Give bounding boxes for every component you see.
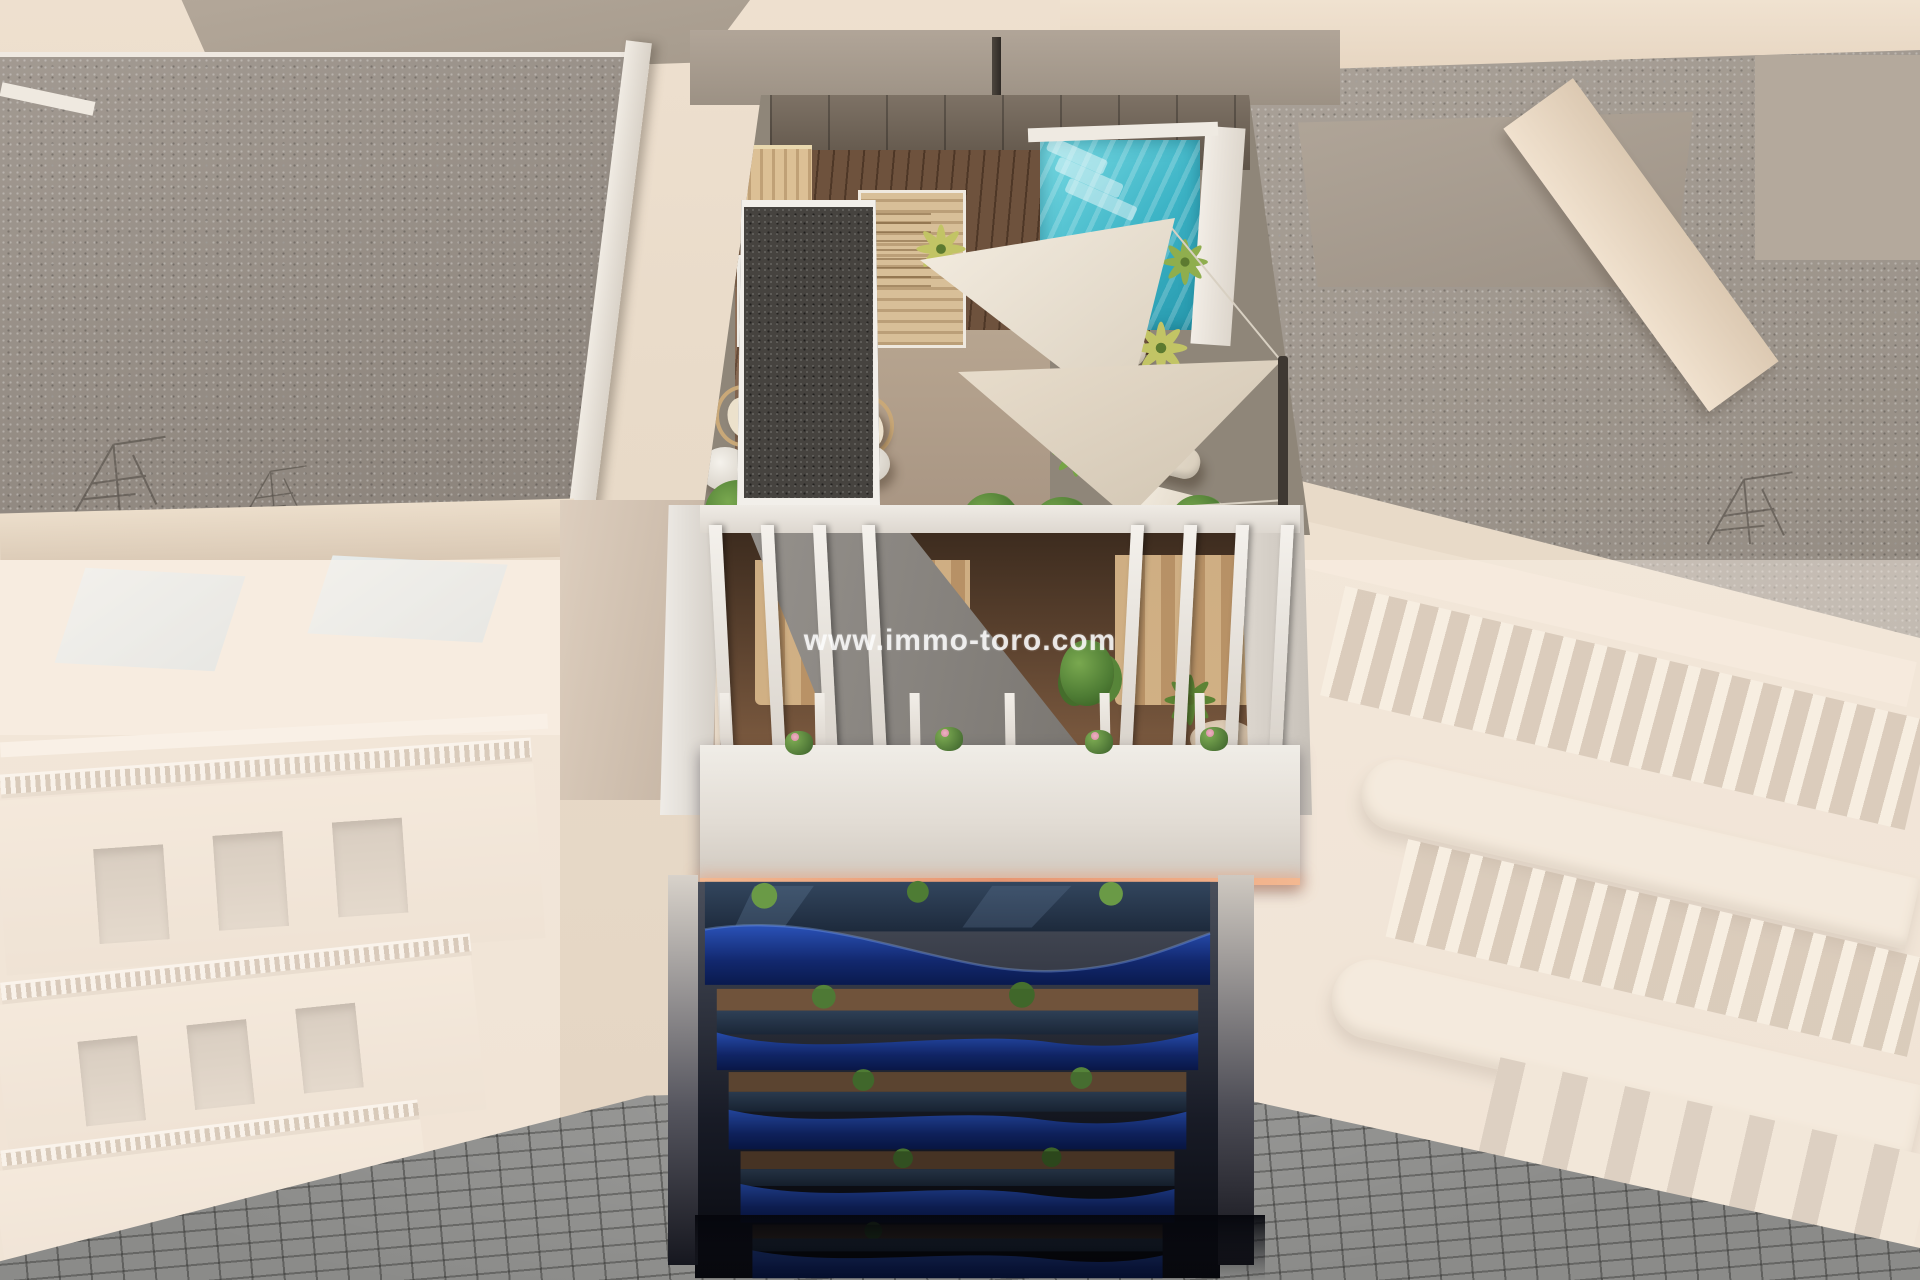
- balcony-plant: [907, 881, 929, 903]
- sail-pole: [1278, 356, 1288, 508]
- depth-shade: [729, 1072, 1187, 1149]
- parapet-post: [815, 693, 826, 745]
- balcony-plant: [1099, 882, 1123, 906]
- skylight: [55, 568, 246, 671]
- neighbor-gravel-roof-left: [0, 52, 648, 514]
- window: [332, 818, 408, 918]
- window: [186, 1019, 255, 1110]
- shade-sail: [958, 360, 1282, 518]
- neighbor-roof-block: [1755, 55, 1920, 260]
- parapet-post: [720, 693, 731, 745]
- flower-pot: [785, 731, 813, 755]
- window: [77, 1036, 146, 1127]
- balcony-plant: [751, 883, 777, 909]
- flower-pot: [1200, 727, 1228, 751]
- pool-steps: [1046, 136, 1109, 175]
- far-wall: [690, 30, 1340, 105]
- parapet-post: [1005, 693, 1016, 745]
- penthouse-lintel: [700, 505, 1300, 533]
- balcony-level-3: [729, 1067, 1187, 1149]
- balcony-flank-wall: [668, 875, 698, 1265]
- balcony-level-4: [741, 1147, 1175, 1222]
- depth-shade: [717, 989, 1198, 1070]
- building-base-shadow: [695, 1215, 1265, 1280]
- skylight: [307, 555, 507, 642]
- antenna-sketch-icon: [55, 427, 185, 522]
- parapet-post: [910, 693, 921, 745]
- window: [213, 831, 289, 931]
- render-canvas: ✶: [0, 0, 1920, 1280]
- pool-steps: [1054, 156, 1124, 198]
- balcony-flank-wall: [1218, 875, 1254, 1265]
- depth-shade: [741, 1151, 1175, 1222]
- flower-pot: [935, 727, 963, 751]
- balcony-level-2: [717, 982, 1198, 1070]
- window: [295, 1003, 364, 1094]
- flower-pot: [1085, 730, 1113, 754]
- window: [93, 844, 169, 944]
- watermark-text: www.immo-toro.com: [804, 624, 1117, 658]
- antenna-sketch-icon: [1680, 465, 1820, 550]
- penthouse-fascia: [700, 745, 1300, 885]
